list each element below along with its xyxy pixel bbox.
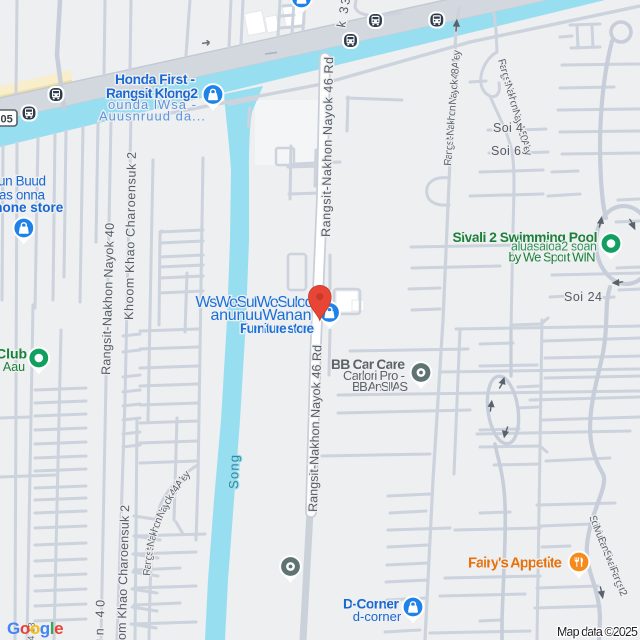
svg-text:BB AnSIIAS: BB AnSIIAS <box>352 379 408 394</box>
svg-text:un Buud: un Buud <box>0 174 46 189</box>
svg-text:Soi 4: Soi 4 <box>493 121 523 135</box>
svg-text:by We Sport WIN: by We Sport WIN <box>509 250 596 265</box>
svg-text:phone store: phone store <box>0 200 64 215</box>
svg-text:Google: Google <box>7 619 63 638</box>
svg-text:Map data ©2025: Map data ©2025 <box>557 625 638 639</box>
svg-text:Furniture store: Furniture store <box>240 321 314 336</box>
svg-text:Auusnruud da...: Auusnruud da... <box>99 109 205 124</box>
svg-text:Aau: Aau <box>3 360 25 374</box>
svg-text:Soi 6: Soi 6 <box>491 144 521 158</box>
svg-text:Soi 24: Soi 24 <box>564 290 602 304</box>
svg-text:305: 305 <box>0 114 13 126</box>
svg-text:Khoom Khao Charoensuk 2: Khoom Khao Charoensuk 2 <box>122 152 139 320</box>
svg-text:Fairy's Appetite: Fairy's Appetite <box>468 555 562 572</box>
svg-text:d-corner: d-corner <box>353 609 402 624</box>
svg-text:Song: Song <box>226 455 242 489</box>
